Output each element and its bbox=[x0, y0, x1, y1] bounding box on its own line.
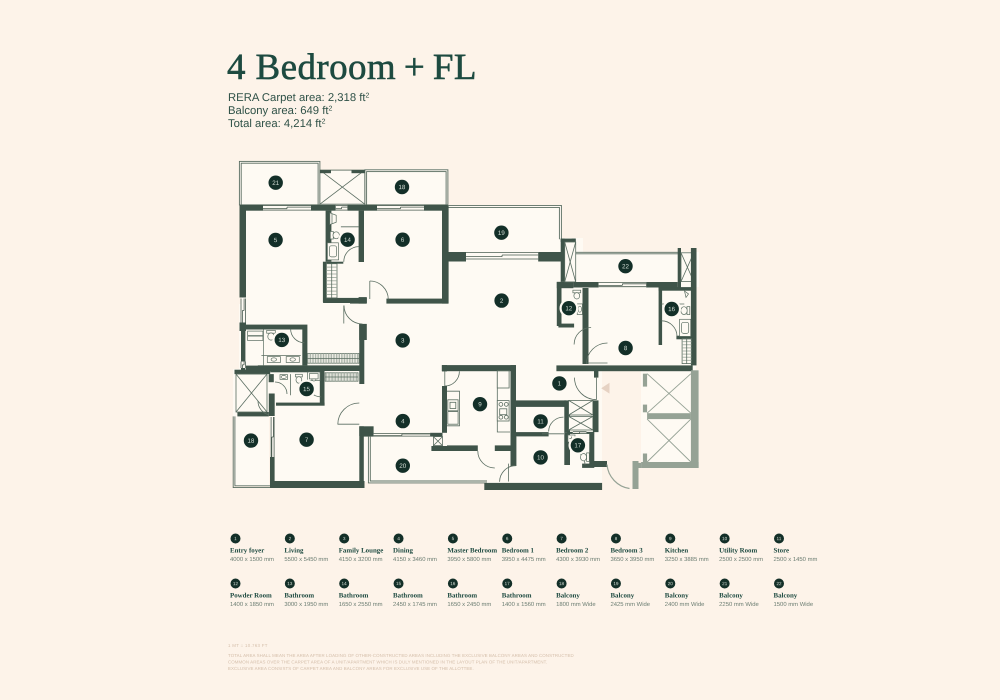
svg-text:Dining: Dining bbox=[393, 548, 413, 555]
svg-text:Master Bedroom: Master Bedroom bbox=[447, 548, 497, 555]
svg-text:Bathroom: Bathroom bbox=[339, 593, 369, 600]
svg-text:3000 x 1950 mm: 3000 x 1950 mm bbox=[284, 601, 328, 608]
svg-text:Total area: 4,214 ft2: Total area: 4,214 ft2 bbox=[228, 118, 326, 130]
svg-text:Balcony area: 649 ft2: Balcony area: 649 ft2 bbox=[228, 105, 332, 117]
svg-text:1500 mm Wide: 1500 mm Wide bbox=[774, 601, 814, 608]
svg-text:Store: Store bbox=[774, 548, 790, 555]
svg-text:Bathroom: Bathroom bbox=[447, 593, 477, 600]
svg-text:Bathroom: Bathroom bbox=[284, 593, 314, 600]
svg-text:Balcony: Balcony bbox=[610, 593, 634, 600]
svg-text:2500 x 2500 mm: 2500 x 2500 mm bbox=[719, 556, 763, 563]
svg-text:Balcony: Balcony bbox=[719, 593, 743, 600]
svg-text:Family Lounge: Family Lounge bbox=[339, 548, 384, 555]
svg-text:1800 mm Wide: 1800 mm Wide bbox=[556, 601, 596, 608]
svg-text:2450 x 1745 mm: 2450 x 1745 mm bbox=[393, 601, 437, 608]
svg-text:4 Bedroom + FL: 4 Bedroom + FL bbox=[227, 47, 477, 88]
svg-text:5500 x 5450 mm: 5500 x 5450 mm bbox=[284, 556, 328, 563]
svg-text:Entry foyer: Entry foyer bbox=[230, 548, 264, 555]
svg-text:Living: Living bbox=[284, 548, 304, 555]
svg-text:Utility Room: Utility Room bbox=[719, 548, 757, 555]
svg-text:Balcony: Balcony bbox=[665, 593, 689, 600]
svg-text:4000 x 1500 mm: 4000 x 1500 mm bbox=[230, 556, 274, 563]
svg-text:Powder Room: Powder Room bbox=[230, 593, 272, 600]
svg-text:3250 x 3885 mm: 3250 x 3885 mm bbox=[665, 556, 709, 563]
svg-text:2500 x 1450 mm: 2500 x 1450 mm bbox=[774, 556, 818, 563]
svg-text:Balcony: Balcony bbox=[556, 593, 580, 600]
svg-text:4150 x 3460 mm: 4150 x 3460 mm bbox=[393, 556, 437, 563]
svg-text:1400 x 1560 mm: 1400 x 1560 mm bbox=[502, 601, 546, 608]
svg-text:Balcony: Balcony bbox=[774, 593, 798, 600]
svg-text:3650 x 3950 mm: 3650 x 3950 mm bbox=[610, 556, 654, 563]
svg-text:1400 x 1850 mm: 1400 x 1850 mm bbox=[230, 601, 274, 608]
svg-text:COMMON AREAS OVER THE CARPET A: COMMON AREAS OVER THE CARPET AREA OF A U… bbox=[228, 660, 547, 665]
svg-text:Bathroom: Bathroom bbox=[502, 593, 532, 600]
svg-text:TOTAL AREA SHALL MEAN THE AREA: TOTAL AREA SHALL MEAN THE AREA AFTER LOA… bbox=[228, 653, 574, 658]
svg-text:1 MT = 10.763 FT: 1 MT = 10.763 FT bbox=[228, 643, 268, 648]
svg-text:Bedroom 1: Bedroom 1 bbox=[502, 548, 535, 555]
svg-text:1650 x 2550 mm: 1650 x 2550 mm bbox=[339, 601, 383, 608]
svg-text:3950 x 5800 mm: 3950 x 5800 mm bbox=[447, 556, 491, 563]
svg-text:Kitchen: Kitchen bbox=[665, 548, 689, 555]
svg-text:3950 x 4475 mm: 3950 x 4475 mm bbox=[502, 556, 546, 563]
svg-text:Bedroom 3: Bedroom 3 bbox=[610, 548, 643, 555]
svg-text:EXCLUSIVE AREA CONSISTS OF CAR: EXCLUSIVE AREA CONSISTS OF CARPET AREA A… bbox=[228, 666, 474, 671]
svg-text:1650 x 2450 mm: 1650 x 2450 mm bbox=[447, 601, 491, 608]
svg-text:2425 mm Wide: 2425 mm Wide bbox=[610, 601, 650, 608]
svg-text:RERA Carpet area: 2,318 ft2: RERA Carpet area: 2,318 ft2 bbox=[228, 92, 370, 104]
svg-text:2400 mm Wide: 2400 mm Wide bbox=[665, 601, 705, 608]
svg-text:2250 mm Wide: 2250 mm Wide bbox=[719, 601, 759, 608]
svg-text:Bathroom: Bathroom bbox=[393, 593, 423, 600]
svg-text:4150 x 3200 mm: 4150 x 3200 mm bbox=[339, 556, 383, 563]
svg-text:Bedroom 2: Bedroom 2 bbox=[556, 548, 589, 555]
svg-text:4300 x 3930 mm: 4300 x 3930 mm bbox=[556, 556, 600, 563]
